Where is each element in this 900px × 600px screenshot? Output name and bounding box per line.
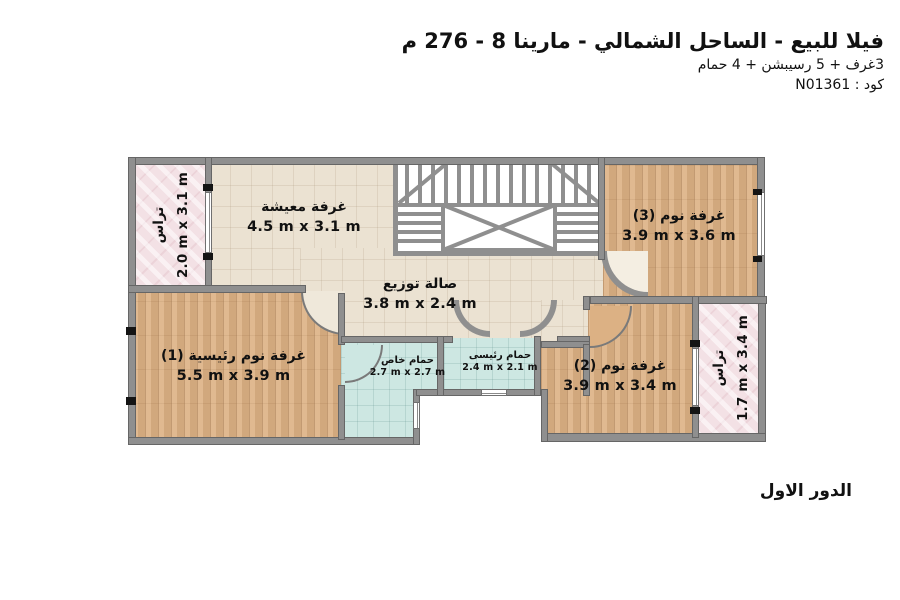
wall xyxy=(128,157,765,165)
room-dims: 5.5 m x 3.9 m xyxy=(126,366,341,387)
room-dims: 3.8 m x 2.4 m xyxy=(330,294,510,315)
room-dims: 3.9 m x 3.4 m xyxy=(535,376,705,397)
living-room-label: غرفة معيشة 4.5 m x 3.1 m xyxy=(204,197,404,238)
wall xyxy=(338,385,345,440)
wall xyxy=(758,296,766,442)
hall-label: صالة توزيع 3.8 m x 2.4 m xyxy=(330,274,510,315)
floor-name-label: الدور الاول xyxy=(760,481,852,501)
window-tick xyxy=(690,407,700,414)
window-tick xyxy=(126,397,136,405)
listing-title: فيلا للبيع - الساحل الشمالي - مارينا 8 -… xyxy=(402,28,884,54)
room-name: صالة توزيع xyxy=(330,274,510,294)
room-name: غرفة معيشة xyxy=(204,197,404,217)
terrace-top-left-label: تراس 2.0 m x 3.1 m xyxy=(146,155,190,295)
window-tick xyxy=(753,256,762,262)
staircase xyxy=(393,157,605,256)
room-dims: 1.7 m x 3.4 m xyxy=(734,309,754,427)
exterior-notch xyxy=(420,396,541,443)
window-tick xyxy=(203,184,213,191)
room-name: تراس xyxy=(150,201,170,250)
room-name: غرفة نوم رئيسية (1) xyxy=(126,346,341,366)
room-name: غرفة نوم (2) xyxy=(535,356,705,376)
window-tick xyxy=(690,340,700,347)
master-bedroom-label: غرفة نوم رئيسية (1) 5.5 m x 3.9 m xyxy=(126,346,341,387)
room-dims: 3.9 m x 3.6 m xyxy=(603,226,755,247)
room-name: تراس xyxy=(710,344,730,393)
window-tick xyxy=(126,327,136,335)
window xyxy=(481,389,507,396)
room-dims: 4.5 m x 3.1 m xyxy=(204,217,404,238)
window xyxy=(413,402,420,429)
room-name: غرفة نوم (3) xyxy=(603,206,755,226)
wall xyxy=(128,437,420,445)
wall xyxy=(583,296,590,310)
listing-code: كود : N01361 xyxy=(402,77,884,93)
window xyxy=(757,192,765,256)
room-dims: 2.0 m x 3.1 m xyxy=(174,166,194,284)
window-tick xyxy=(203,253,213,260)
terrace-right-label: تراس 1.7 m x 3.4 m xyxy=(706,298,750,438)
window-tick xyxy=(753,189,762,195)
floor-plan-page: فيلا للبيع - الساحل الشمالي - مارينا 8 -… xyxy=(0,0,900,600)
listing-subtitle: 3غرف + 5 رسيبشن + 4 حمام xyxy=(402,57,884,73)
bedroom-2-label: غرفة نوم (2) 3.9 m x 3.4 m xyxy=(535,356,705,397)
bedroom-3-label: غرفة نوم (3) 3.9 m x 3.6 m xyxy=(603,206,755,247)
listing-header: فيلا للبيع - الساحل الشمالي - مارينا 8 -… xyxy=(402,28,884,93)
